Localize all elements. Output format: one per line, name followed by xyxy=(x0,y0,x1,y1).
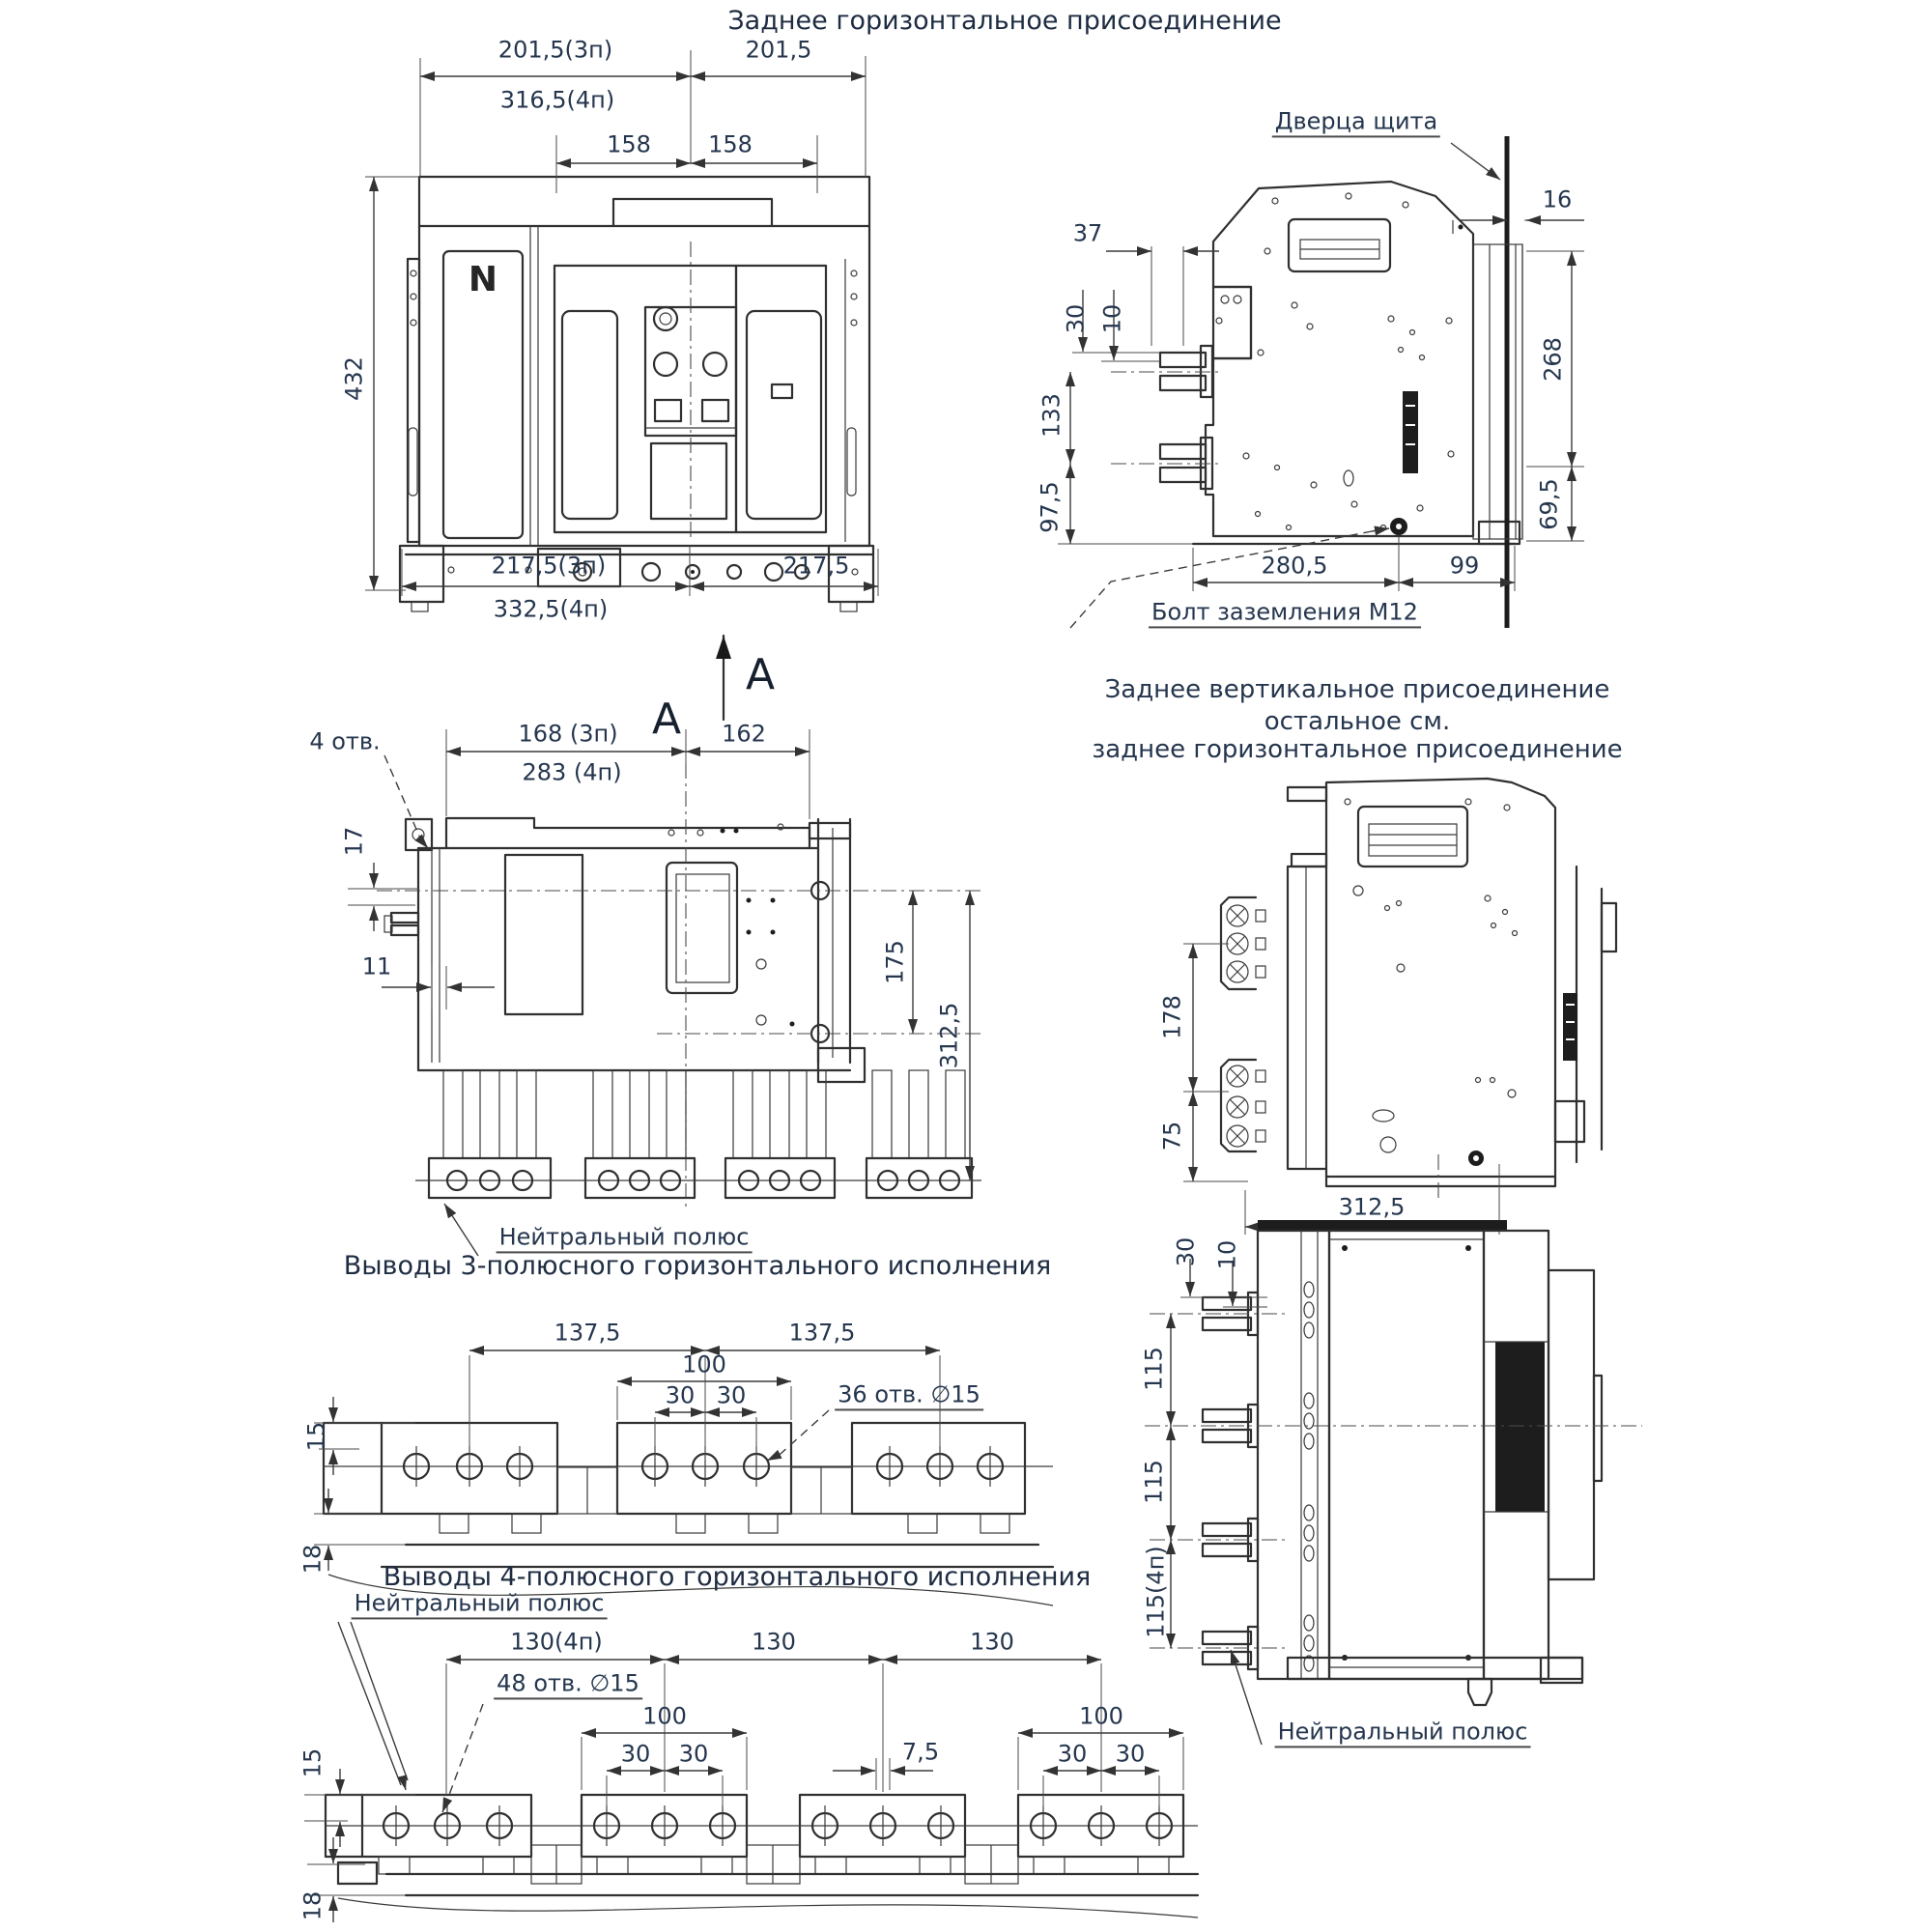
busbar-4p-linework xyxy=(304,1622,1198,1922)
callout-neutral-pole-rear: Нейтральный полюс xyxy=(1275,1719,1531,1747)
dim-bus4-hole-r2: 30 xyxy=(1116,1742,1146,1766)
callout-ground-bolt: Болт заземления М12 xyxy=(1149,600,1421,628)
dim-side-stud-pitch: 133 xyxy=(1039,393,1064,438)
dim-front-base-right: 217,5 xyxy=(783,554,850,578)
dim-front-base-4p: 332,5(4п) xyxy=(494,597,608,621)
side-view-section-linework xyxy=(1145,1220,1642,1745)
dim-bus4-pitch-neutral: 130(4п) xyxy=(510,1630,603,1654)
drawing-linework xyxy=(0,0,1932,1932)
dim-front-width-right: 201,5 xyxy=(746,38,812,62)
plan-view-linework xyxy=(348,729,981,1256)
dim-bus4-hole-l1: 30 xyxy=(621,1742,651,1766)
callout-holes-3p: 36 отв. ∅15 xyxy=(835,1382,983,1410)
dim-bus3-thickness: 15 xyxy=(304,1422,328,1452)
dim-bus4-hole-l2: 30 xyxy=(679,1742,709,1766)
dim-bus3-pitch-right: 137,5 xyxy=(789,1321,856,1345)
dim-section-pitch-1: 115 xyxy=(1142,1347,1166,1391)
dim-plan-width-right: 162 xyxy=(722,722,766,746)
dim-side-front: 99 xyxy=(1450,554,1480,578)
dim-section-pitch-3: 115(4п) xyxy=(1144,1546,1168,1638)
dim-bus4-hole-r1: 30 xyxy=(1058,1742,1088,1766)
dim-section-stud-upper: 30 xyxy=(1174,1237,1198,1267)
dim-section-pitch-2: 115 xyxy=(1142,1460,1166,1504)
dim-front-height: 432 xyxy=(342,356,366,401)
callout-panel-door: Дверца щита xyxy=(1272,109,1440,137)
drawing-sheet: Заднее горизонтальное присоединение Задн… xyxy=(0,0,1932,1932)
dim-plan-depth-total: 312,5 xyxy=(937,1003,961,1069)
neutral-pole-marking: N xyxy=(469,262,497,298)
dim-side-depth: 280,5 xyxy=(1262,554,1328,578)
dim-side-stud-bottom: 97,5 xyxy=(1037,481,1062,532)
title-terminals-3p: Выводы 3-полюсного горизонтального испол… xyxy=(344,1253,1052,1280)
dim-vert-depth: 312,5 xyxy=(1339,1195,1406,1219)
dim-bus3-pitch-left: 137,5 xyxy=(554,1321,621,1345)
dim-vert-pad-bottom: 75 xyxy=(1160,1122,1184,1151)
title-terminals-4p: Выводы 4-полюсного горизонтального испол… xyxy=(384,1564,1092,1591)
callout-four-holes: 4 отв. xyxy=(309,729,380,753)
dim-front-width-3p: 201,5(3п) xyxy=(498,38,612,62)
dim-side-height-upper: 268 xyxy=(1541,337,1565,382)
note-rear-vertical-line3: заднее горизонтальное присоединение xyxy=(1092,735,1622,764)
dim-bus3-support: 18 xyxy=(300,1545,325,1575)
section-letter-left: А xyxy=(652,697,681,742)
dim-bus3-hole-right: 30 xyxy=(717,1383,747,1407)
dim-bus4-pitch-3: 130 xyxy=(970,1630,1014,1654)
dim-side-door-gap: 16 xyxy=(1543,187,1573,212)
title-rear-horizontal: Заднее горизонтальное присоединение xyxy=(727,8,1281,35)
dim-bus4-pitch-2: 130 xyxy=(752,1630,796,1654)
dim-bus4-center-offset: 7,5 xyxy=(902,1740,939,1764)
section-letter-right: А xyxy=(746,653,775,697)
dim-side-height-lower: 69,5 xyxy=(1537,478,1561,529)
dim-bus4-pad-width-left: 100 xyxy=(642,1704,687,1728)
dim-front-pitch-right: 158 xyxy=(708,132,753,156)
dim-front-pitch-left: 158 xyxy=(607,132,651,156)
dim-vert-pad-pitch: 178 xyxy=(1160,995,1184,1039)
dim-plan-edge-offset: 11 xyxy=(362,954,392,979)
dim-section-stud-lower: 10 xyxy=(1215,1240,1239,1270)
dim-bus4-pad-width-right: 100 xyxy=(1079,1704,1123,1728)
note-rear-vertical-line1: Заднее вертикальное присоединение xyxy=(1105,675,1610,704)
dim-plan-hole-offset: 17 xyxy=(342,827,366,857)
dim-bus3-pad-width: 100 xyxy=(682,1352,726,1377)
callout-neutral-pole-plan: Нейтральный полюс xyxy=(497,1225,753,1253)
note-rear-vertical-line2: остальное см. xyxy=(1264,707,1451,736)
dim-plan-depth-rear: 175 xyxy=(883,940,907,984)
dim-bus3-hole-left: 30 xyxy=(666,1383,696,1407)
dim-side-stud-offset: 37 xyxy=(1073,221,1103,245)
dim-plan-width-3p: 168 (3п) xyxy=(518,722,617,746)
dim-side-stud-lower: 10 xyxy=(1100,304,1124,334)
dim-bus4-thickness: 15 xyxy=(300,1748,325,1778)
callout-neutral-pole-4p: Нейтральный полюс xyxy=(352,1591,608,1619)
callout-holes-4p: 48 отв. ∅15 xyxy=(494,1671,642,1699)
dim-bus4-support: 18 xyxy=(300,1891,325,1921)
dim-plan-width-4p: 283 (4п) xyxy=(522,760,621,784)
dim-front-base-3p: 217,5(3п) xyxy=(492,554,606,578)
dim-front-width-4p: 316,5(4п) xyxy=(500,88,614,112)
side-view-vertical-linework xyxy=(1183,779,1616,1235)
dim-side-stud-upper: 30 xyxy=(1064,304,1088,334)
